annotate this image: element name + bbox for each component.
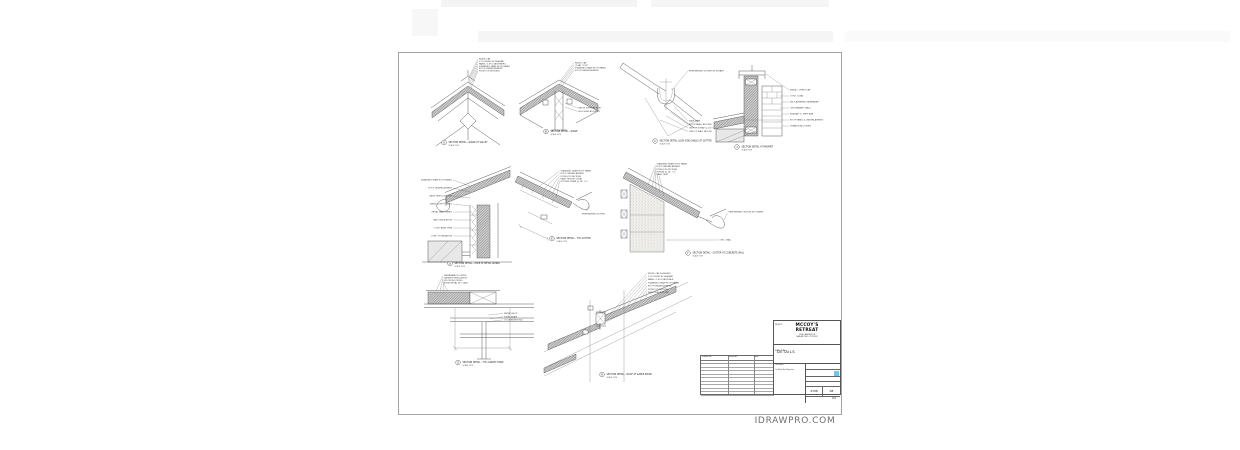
drawn-by-label: DRAWN BY:: [807, 377, 816, 379]
scan-artifact: [845, 31, 1230, 42]
revision-col-header: DATE: [753, 356, 773, 360]
scan-artifact: [441, 0, 637, 7]
sheet-title: DETAILS: [777, 350, 840, 354]
project-label: PROJECT:: [775, 325, 783, 327]
column-divider: [754, 356, 755, 394]
project-no-cell: PROJECT NO: 2708: [806, 387, 823, 396]
watermark-text: IDRAWPRO.COM: [733, 416, 857, 426]
scale-value: AS TO SCALE: [814, 382, 825, 384]
canvas: { "sheet": { "watermark": "IDRAWPRO.COM"…: [0, 0, 1240, 450]
customer-name: On Point Roof Systems: [775, 370, 804, 372]
scan-artifact: [478, 31, 833, 42]
title-block: PROJECT: MCCOY'S RETREAT 1208 LAKESIDE D…: [773, 320, 841, 395]
title-block-project: PROJECT: MCCOY'S RETREAT 1208 LAKESIDE D…: [774, 324, 840, 345]
title-block-bottom: Customer: On Point Roof Systems DATE: 03…: [774, 364, 840, 403]
revision-col-header: REVISIONS: [727, 356, 753, 360]
scan-artifact: [651, 0, 829, 7]
sheet-title-label: SHEET TITLE:: [775, 351, 786, 353]
sheet-no-value: D1: [832, 398, 836, 401]
revision-empty-row: [701, 392, 774, 396]
date-label: DATE:: [807, 364, 812, 366]
revision-cell: ISSUE: [701, 361, 727, 364]
drawn-label: DRAWN:: [807, 370, 814, 372]
project-address-line2: SAN ANTONIO, TX 78232: [774, 336, 840, 338]
numbers-row: PROJECT NO: 2708 DRAWING NO: 08: [806, 387, 840, 397]
sheet-no-row: SHEET NO: D1: [806, 397, 840, 403]
column-divider: [728, 356, 729, 394]
title-block-sheet-title: SHEET TITLE: DETAILS: [774, 350, 840, 364]
date-value: 03/08/2024: [813, 364, 823, 366]
scan-artifact: [412, 9, 438, 36]
drawing-no-cell: DRAWING NO: 08: [823, 387, 840, 396]
drawn-row: DRAWN: IDRAWPRO.COM: [806, 370, 840, 377]
revision-table: SUBMITTAL REVISIONS DATE ISSUE 03/2024: [700, 355, 774, 395]
customer-label: Customer:: [775, 365, 804, 367]
title-block-fields: DATE: 03/08/2024 DRAWN: IDRAWPRO.COM DRA…: [806, 364, 840, 403]
logo-swatch: [834, 371, 840, 377]
scale-label: SCALE:: [807, 382, 813, 384]
project-no-value: 2708: [806, 390, 822, 393]
revision-col-header: SUBMITTAL: [701, 356, 727, 360]
drawn-by-value: CAD: [817, 377, 821, 379]
sheet-no-label: SHEET NO:: [807, 397, 816, 399]
revision-cell: 03/2024: [753, 361, 773, 364]
revision-cell: [727, 361, 753, 364]
drawn-value: IDRAWPRO.COM: [815, 370, 829, 372]
customer-cell: Customer: On Point Roof Systems: [774, 364, 806, 403]
drawing-no-value: 08: [823, 390, 840, 393]
